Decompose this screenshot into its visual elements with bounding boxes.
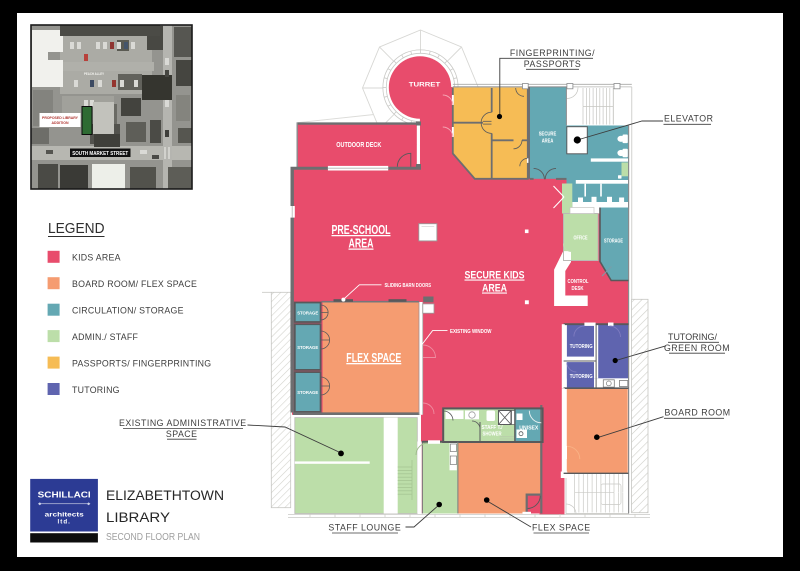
svg-text:DESK: DESK	[572, 286, 584, 292]
svg-text:STAFF LOUNGE: STAFF LOUNGE	[328, 523, 401, 533]
svg-text:PROPOSED LIBRARY: PROPOSED LIBRARY	[42, 116, 79, 120]
svg-text:OUTDOOR DECK: OUTDOOR DECK	[336, 142, 381, 149]
svg-text:PASSPORTS: PASSPORTS	[524, 59, 581, 69]
svg-text:SECURE: SECURE	[539, 132, 557, 138]
svg-text:ltd.: ltd.	[58, 519, 71, 526]
svg-text:ADMIN./ STAFF: ADMIN./ STAFF	[72, 332, 139, 342]
svg-text:CIRCULATION/ STORAGE: CIRCULATION/ STORAGE	[72, 306, 184, 316]
svg-text:EXISTING WINDOW: EXISTING WINDOW	[450, 329, 492, 335]
svg-text:STAFF T./: STAFF T./	[482, 425, 503, 431]
svg-text:FINGERPRINTING/: FINGERPRINTING/	[510, 48, 595, 58]
svg-text:CONTROL: CONTROL	[568, 279, 590, 285]
svg-text:TUTORING: TUTORING	[72, 385, 120, 395]
svg-text:STORAGE: STORAGE	[297, 390, 319, 396]
svg-text:ELIZABETHTOWN: ELIZABETHTOWN	[106, 488, 224, 504]
svg-text:EXISTING ADMINISTRATIVE: EXISTING ADMINISTRATIVE	[119, 418, 247, 428]
svg-text:ADDITION: ADDITION	[52, 121, 69, 125]
svg-text:LIBRARY: LIBRARY	[106, 510, 171, 526]
svg-text:PEACH ALLEY: PEACH ALLEY	[84, 72, 105, 76]
svg-text:PRE-SCHOOL: PRE-SCHOOL	[332, 223, 391, 237]
svg-text:TUTORING: TUTORING	[570, 374, 593, 380]
svg-text:AREA: AREA	[482, 283, 507, 295]
svg-text:SECOND FLOOR PLAN: SECOND FLOOR PLAN	[106, 532, 200, 543]
svg-text:AREA: AREA	[542, 139, 554, 145]
svg-text:TUTORING/: TUTORING/	[668, 332, 718, 342]
svg-text:FLEX SPACE: FLEX SPACE	[346, 350, 401, 365]
svg-text:SHOWER: SHOWER	[483, 432, 502, 438]
svg-text:STORAGE: STORAGE	[604, 239, 623, 245]
svg-text:TUTORING: TUTORING	[570, 344, 593, 350]
svg-text:LEGEND: LEGEND	[48, 221, 105, 237]
svg-text:SOUTH MARKET STREET: SOUTH MARKET STREET	[72, 151, 128, 157]
svg-text:BOARD ROOM/ FLEX SPACE: BOARD ROOM/ FLEX SPACE	[72, 279, 197, 289]
svg-text:SPACE: SPACE	[166, 429, 198, 439]
svg-text:FLEX SPACE: FLEX SPACE	[532, 523, 591, 533]
svg-text:KIDS AREA: KIDS AREA	[72, 253, 121, 263]
svg-text:TURRET: TURRET	[409, 82, 441, 89]
svg-text:STORAGE: STORAGE	[297, 345, 319, 351]
svg-text:architects: architects	[45, 512, 85, 519]
svg-text:OFFICE: OFFICE	[574, 236, 588, 242]
svg-text:SCHILLACI: SCHILLACI	[38, 491, 91, 500]
svg-text:UNISEX: UNISEX	[519, 426, 539, 432]
svg-text:SECURE KIDS: SECURE KIDS	[465, 270, 525, 282]
svg-text:AREA: AREA	[349, 237, 374, 251]
svg-text:PASSPORTS/ FINGERPRINTING: PASSPORTS/ FINGERPRINTING	[72, 358, 211, 368]
svg-text:GREEN ROOM: GREEN ROOM	[664, 343, 730, 353]
svg-text:ELEVATOR: ELEVATOR	[664, 114, 713, 124]
svg-text:STORAGE: STORAGE	[297, 310, 319, 316]
svg-text:SLIDING BARN DOORS: SLIDING BARN DOORS	[385, 283, 432, 289]
svg-text:BOARD ROOM: BOARD ROOM	[665, 408, 731, 418]
